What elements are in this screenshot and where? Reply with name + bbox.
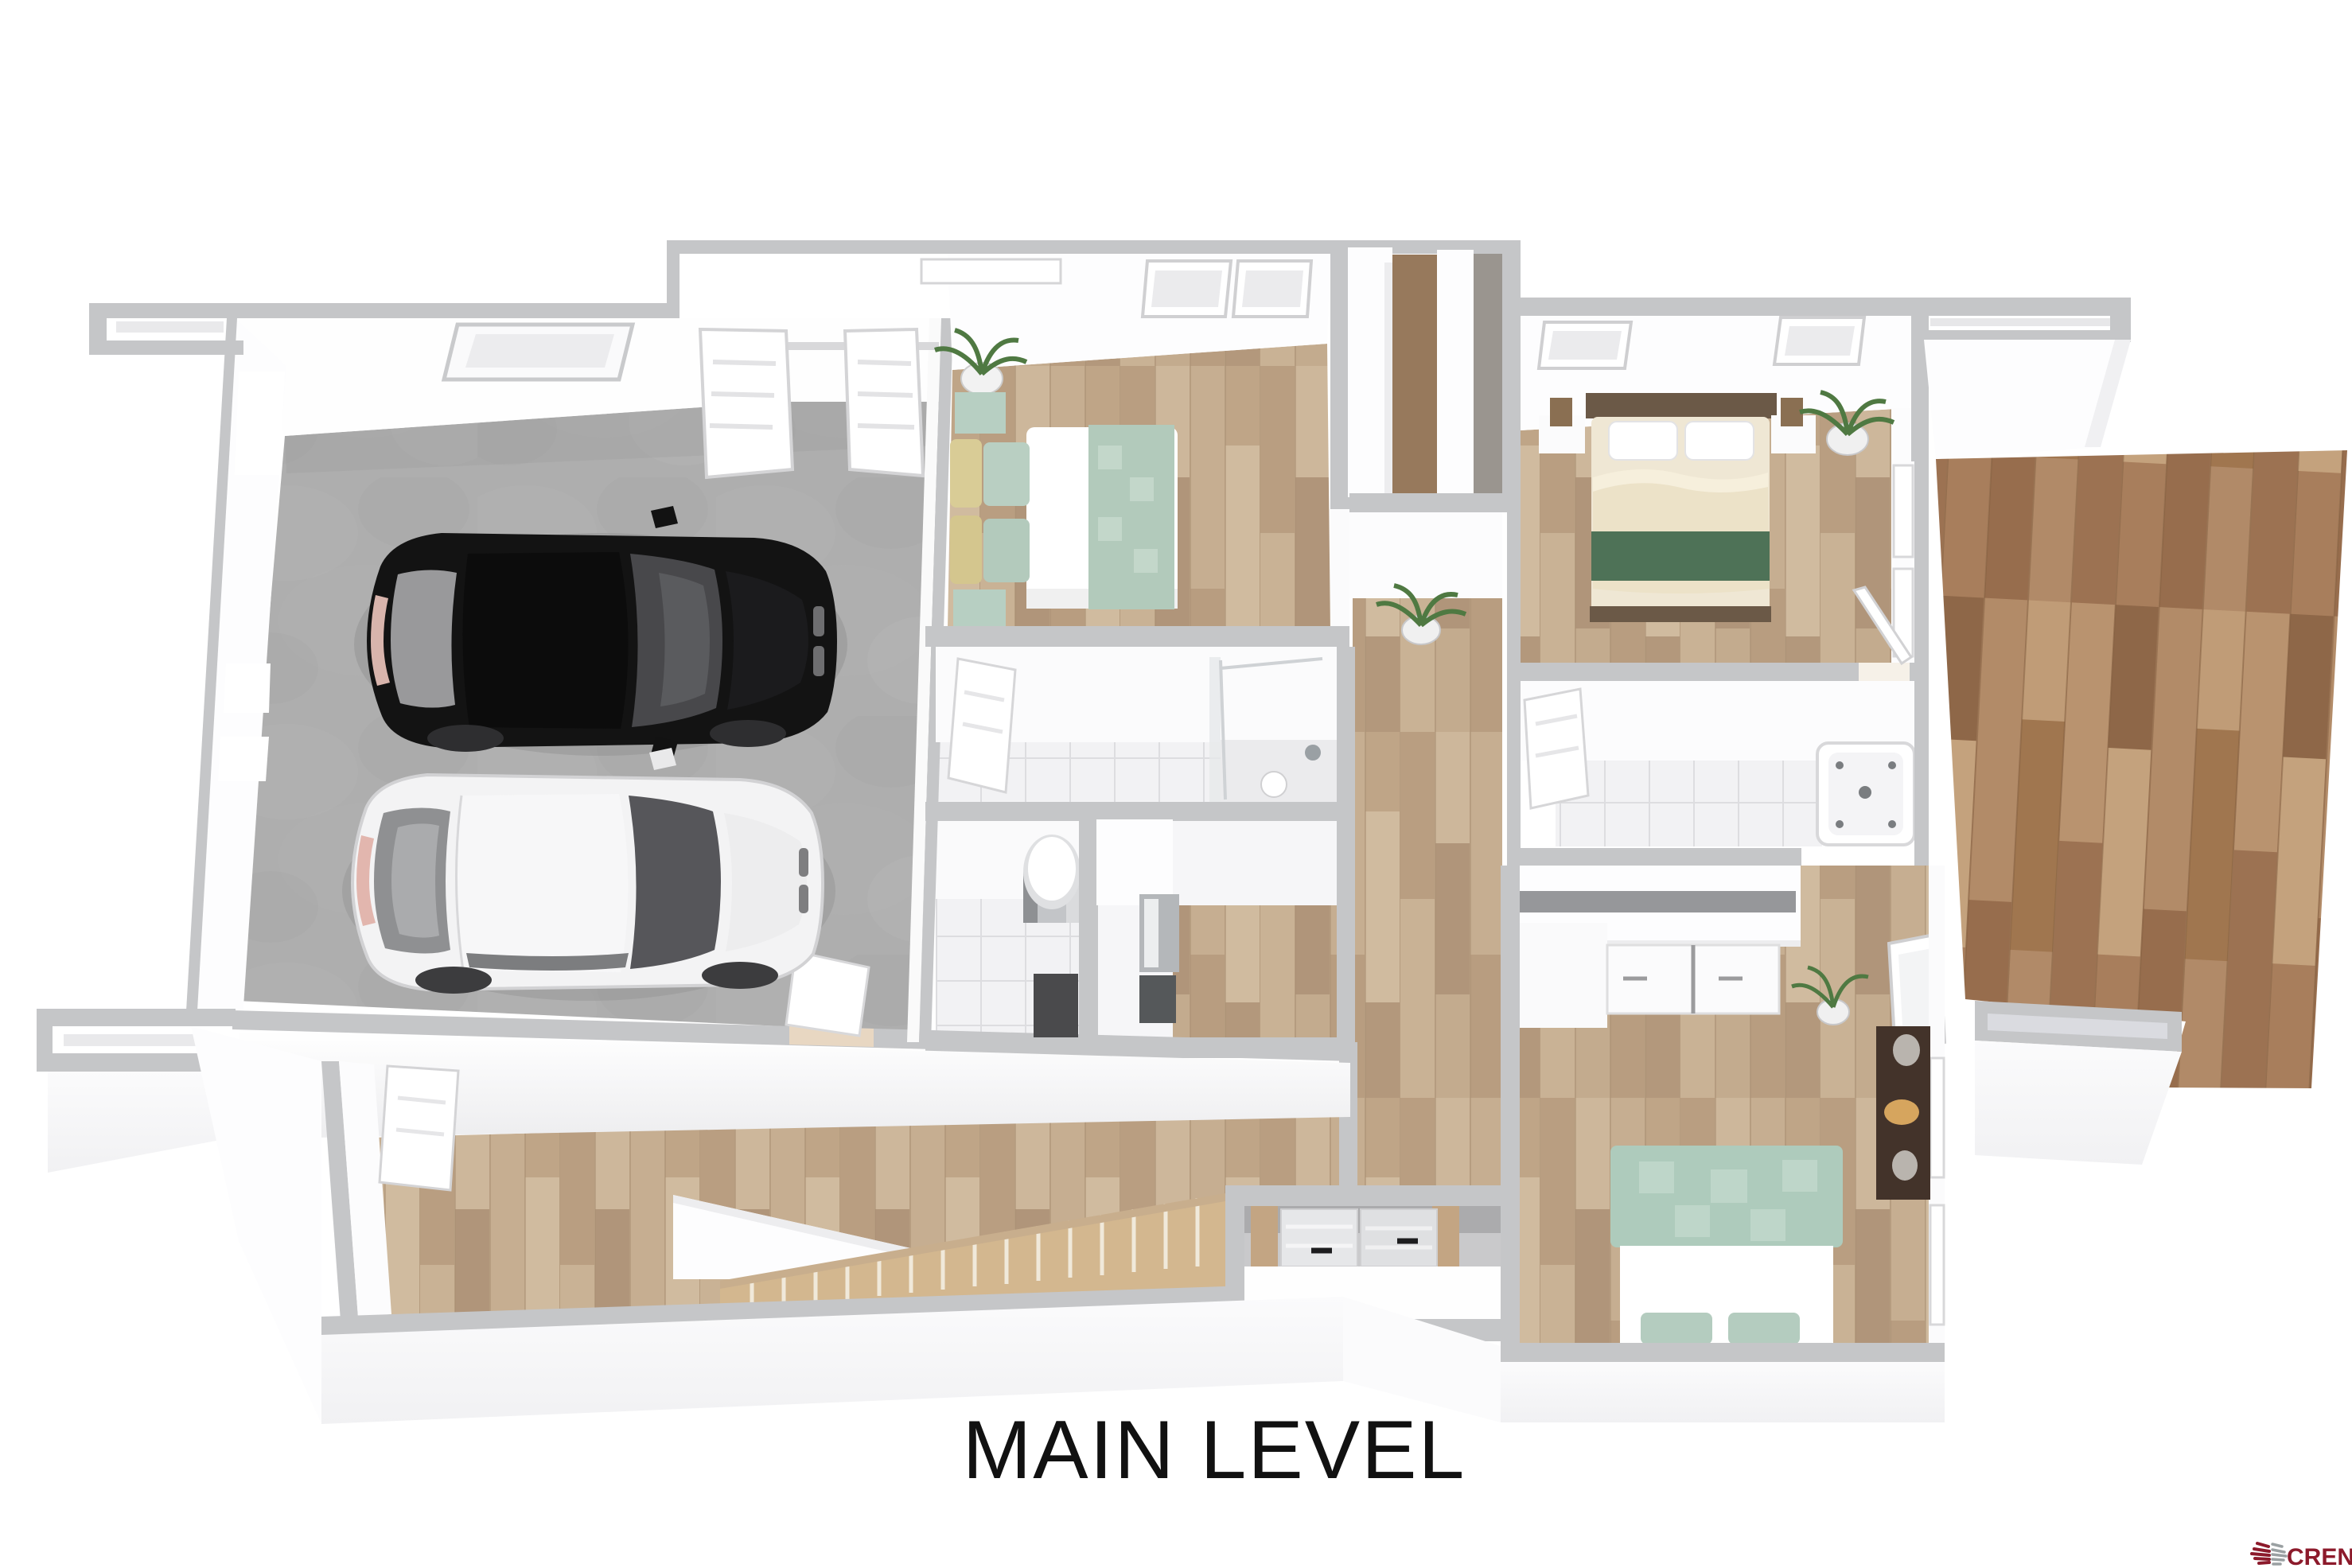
svg-text:MAIN LEVEL: MAIN LEVEL [963, 1404, 1466, 1496]
svg-text:CREN: CREN [2287, 1544, 2352, 1568]
